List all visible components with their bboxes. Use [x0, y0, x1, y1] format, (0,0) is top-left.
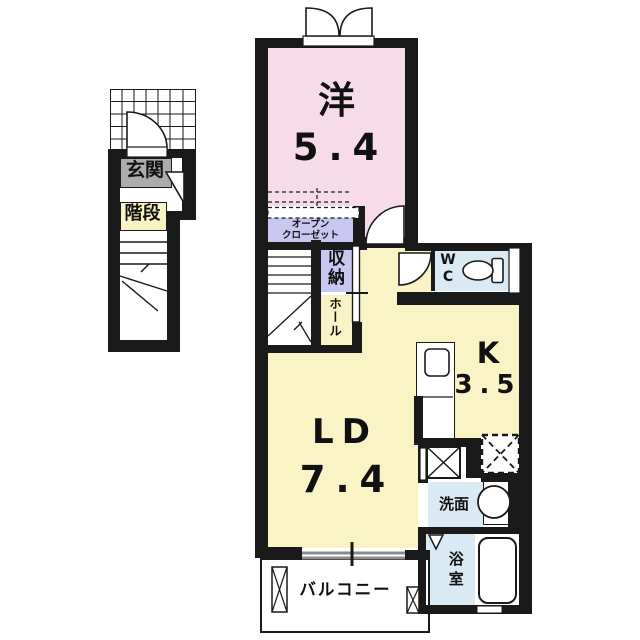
storage-sliding-door: [353, 246, 360, 322]
bathtub-icon: [479, 538, 516, 603]
label-entrance: 玄関: [120, 160, 170, 181]
label-ld-name: LD: [270, 413, 420, 451]
label-hall: ホール: [327, 297, 341, 338]
label-open-closet-line1: オープン: [266, 219, 355, 230]
label-western-name: 洋: [268, 80, 405, 121]
label-kitchen-size: 3.5: [448, 371, 528, 400]
label-open-closet-line2: クローゼット: [266, 230, 355, 241]
label-balcony: バルコニー: [278, 581, 413, 599]
floorplan-canvas: 玄関 階段 洋 5.4 オープン クローゼット 収納 ホール W C K 3.5…: [0, 0, 640, 640]
stairs-2f: [268, 257, 311, 342]
label-bathroom: 浴室: [447, 551, 464, 591]
wc-door-arc: [399, 253, 431, 285]
entrance-door-arc: [127, 112, 167, 148]
kitchen-sink-icon: [425, 349, 449, 376]
stairs-1f: [120, 242, 167, 311]
balcony-window: [302, 542, 405, 566]
fridge-space-icon: [482, 435, 519, 473]
label-ld-size: 7.4: [270, 459, 425, 500]
label-kitchen-name: K: [470, 337, 506, 369]
closet-dashed-lines: [268, 188, 359, 218]
western-room-door-arc: [366, 206, 404, 244]
french-door-sill: [303, 36, 374, 46]
label-wc: W C: [437, 252, 459, 286]
entrance-door-sill: [127, 147, 167, 157]
washer-space-icon: [427, 447, 460, 478]
label-storage: 収納: [324, 249, 343, 287]
bath-wall-notch: [477, 606, 502, 613]
french-doors: [303, 8, 374, 46]
label-washroom: 洗面: [429, 496, 479, 513]
label-stairs: 階段: [120, 204, 165, 224]
bathroom-door-v: [429, 535, 443, 549]
pipe-space: [509, 248, 520, 293]
label-wc-line1: W: [437, 252, 459, 269]
toilet-icon: [463, 259, 503, 283]
label-western-size: 5.4: [268, 127, 413, 168]
washbasin-icon: [478, 486, 510, 518]
label-open-closet: オープン クローゼット: [266, 219, 355, 241]
label-wc-line2: C: [437, 269, 459, 286]
